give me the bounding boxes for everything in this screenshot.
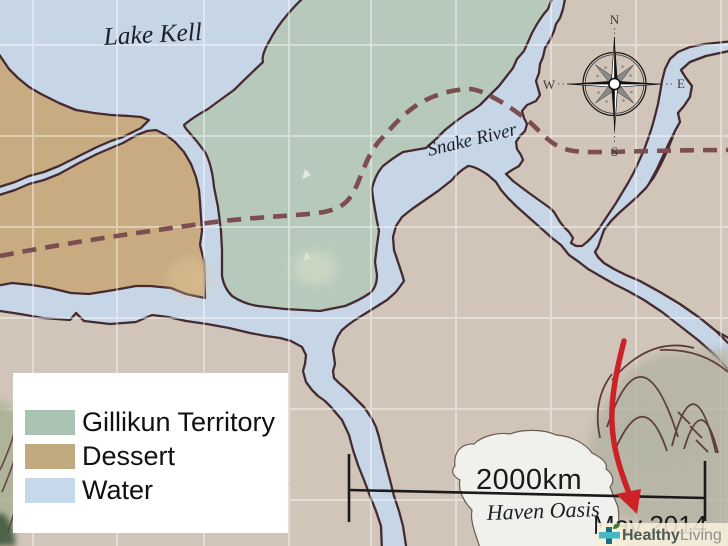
svg-text:Haven Oasis: Haven Oasis <box>485 496 600 525</box>
svg-text:Lake Kell: Lake Kell <box>102 17 203 51</box>
svg-text:W: W <box>543 77 556 92</box>
svg-text:N: N <box>610 12 620 27</box>
svg-text:S: S <box>611 144 618 159</box>
svg-text:Living: Living <box>680 527 722 544</box>
svg-text:2000km: 2000km <box>476 464 582 496</box>
svg-text:E: E <box>677 76 685 91</box>
svg-text:Healthy: Healthy <box>622 527 680 544</box>
